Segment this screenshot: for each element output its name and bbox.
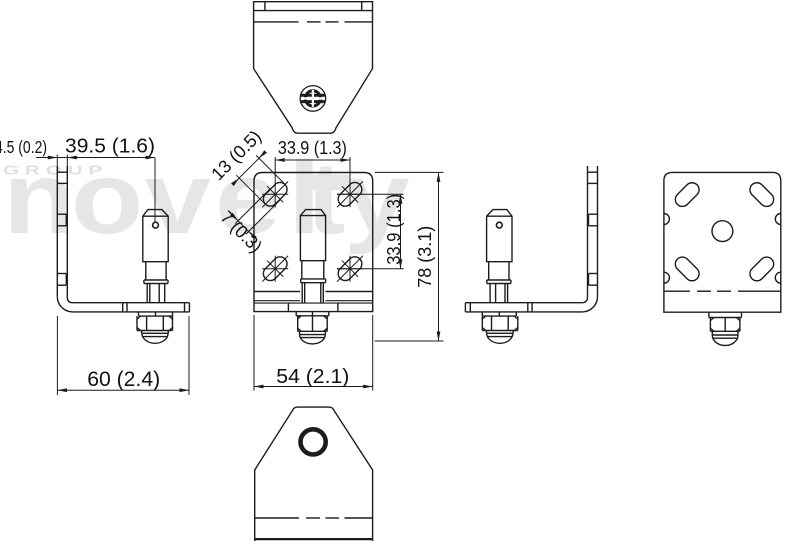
svg-text:4.5 (0.2): 4.5 (0.2)	[0, 137, 47, 157]
svg-text:39.5 (1.6): 39.5 (1.6)	[65, 135, 155, 157]
svg-text:novelty: novelty	[3, 142, 410, 256]
svg-text:54 (2.1): 54 (2.1)	[276, 365, 349, 388]
svg-text:33.9 (1.3): 33.9 (1.3)	[384, 194, 404, 265]
svg-text:33.9 (1.3): 33.9 (1.3)	[278, 138, 347, 158]
svg-text:78 (3.1): 78 (3.1)	[414, 226, 435, 288]
svg-text:60 (2.4): 60 (2.4)	[87, 367, 160, 391]
